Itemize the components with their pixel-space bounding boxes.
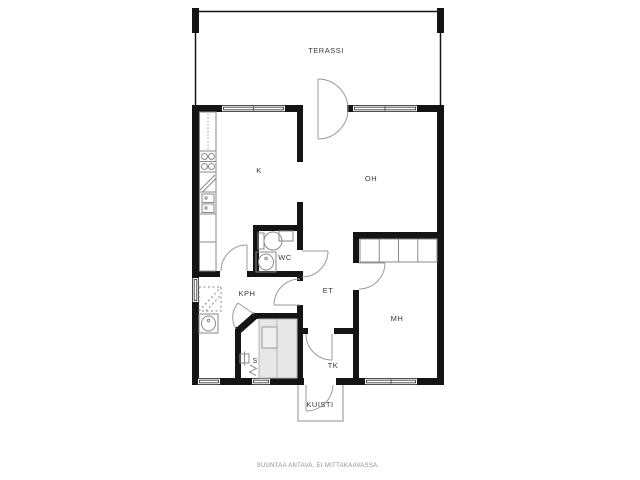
room-label-k: K xyxy=(256,166,262,175)
room-label-et: ET xyxy=(323,286,334,295)
room-label-kph: KPH xyxy=(239,289,256,298)
window-bottom-left xyxy=(198,378,220,385)
disclaimer-text: SUUNTAA ANTAVA, EI MITTAKAAVASSA. xyxy=(257,463,380,469)
room-label-tk: TK xyxy=(328,361,339,370)
bedroom-door xyxy=(359,263,385,289)
room-label-terassi: TERASSI xyxy=(308,46,344,55)
vestibule-door xyxy=(306,334,332,360)
bathroom-door-kitchen xyxy=(221,245,247,271)
window-terrace-kitchen xyxy=(222,105,285,112)
sauna-benches xyxy=(259,319,297,378)
dishwasher-icon xyxy=(200,175,216,192)
exterior-walls xyxy=(192,105,444,385)
wc-door xyxy=(302,251,328,277)
closet-row xyxy=(360,239,437,262)
wc-shelf xyxy=(279,231,293,241)
floorplan-drawing: TERASSI K OH WC KPH ET MH TK S KUISTI SU… xyxy=(0,0,640,480)
room-label-wc: WC xyxy=(278,253,292,262)
kitchen-sink-icon xyxy=(200,194,216,242)
room-label-mh: MH xyxy=(391,314,404,323)
shower-icon xyxy=(199,287,221,311)
window-bottom-sauna xyxy=(252,378,270,385)
toilet-icon xyxy=(258,232,282,250)
window-terrace-livingroom xyxy=(353,105,417,112)
window-left-bathroom xyxy=(192,278,199,302)
floorplan-page: TERASSI K OH WC KPH ET MH TK S KUISTI SU… xyxy=(0,0,640,480)
window-bottom-bedroom xyxy=(365,378,417,385)
bathroom-door-hall xyxy=(274,279,300,305)
terrace-door xyxy=(318,79,348,139)
room-label-kuisti: KUISTI xyxy=(306,400,333,409)
room-label-s: S xyxy=(253,358,258,365)
room-label-oh: OH xyxy=(365,174,377,183)
kph-washbasin-icon xyxy=(199,314,218,333)
interior-walls xyxy=(199,112,444,378)
